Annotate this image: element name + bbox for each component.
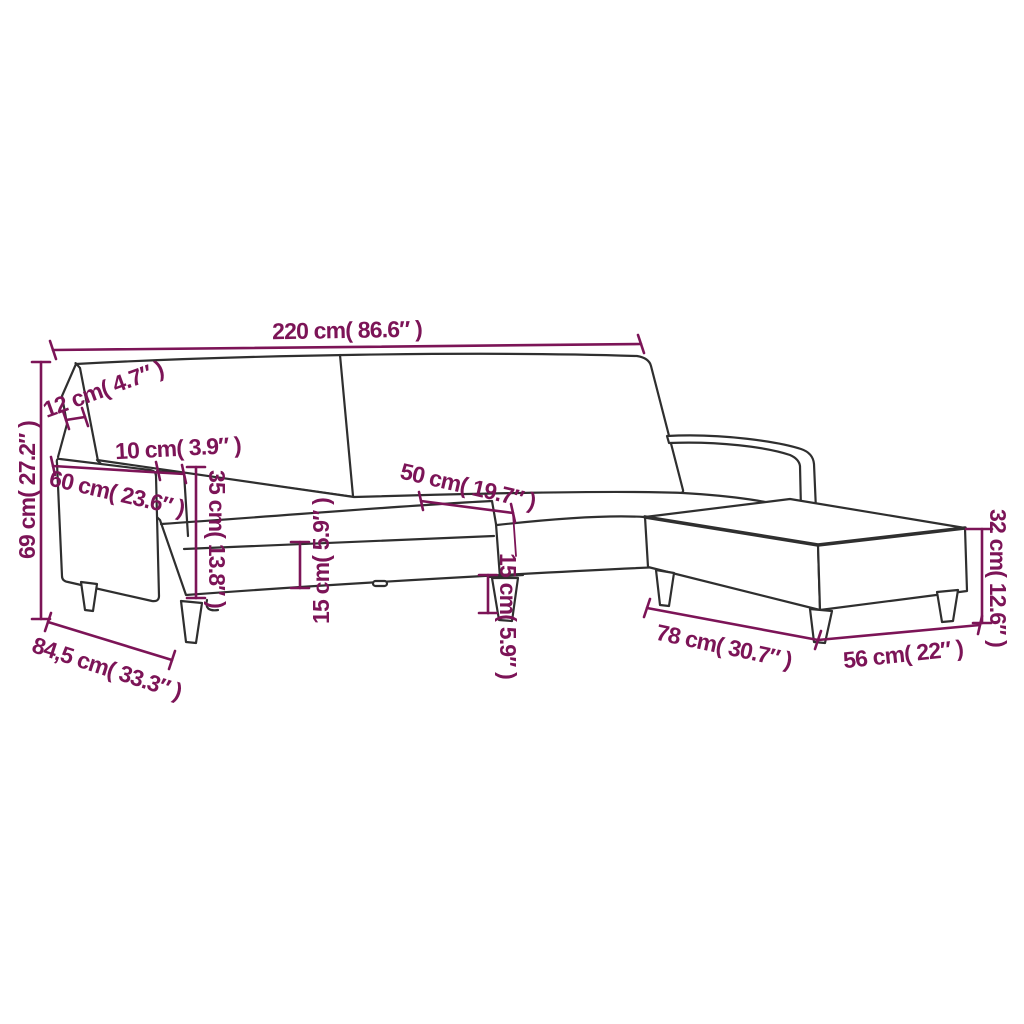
label-armrest-height: 35 cm( 13.8″ ) (204, 470, 230, 608)
sofa-leg-back-left (81, 582, 97, 611)
label-overall-height: 69 cm( 27.2″ ) (14, 421, 40, 559)
product-dimension-diagram: 220 cm( 86.6″ ) 12 cm( 4.7″ ) 10 cm( 3.9… (0, 0, 1024, 1024)
diagram-canvas: 220 cm( 86.6″ ) 12 cm( 4.7″ ) 10 cm( 3.9… (0, 0, 1024, 1024)
label-footstool-length: 78 cm( 30.7″ ) (654, 619, 794, 673)
label-footstool-height: 32 cm( 12.6″ ) (985, 509, 1011, 647)
footstool-leg-left (656, 570, 674, 606)
label-footstool-width: 56 cm( 22″ ) (842, 635, 965, 673)
footstool-leg-right (937, 590, 958, 622)
label-frame-height-left: 15 cm( 5.9″ ) (308, 498, 334, 624)
footstool (645, 499, 967, 643)
label-overall-width: 220 cm( 86.6″ ) (272, 316, 422, 345)
label-overall-depth: 84,5 cm( 33.3″ ) (29, 632, 185, 705)
sofa-leg-front-left (181, 601, 202, 643)
label-frame-height-right: 15 cm( 5.9″ ) (495, 553, 521, 679)
seat-rail-detail (373, 581, 387, 586)
